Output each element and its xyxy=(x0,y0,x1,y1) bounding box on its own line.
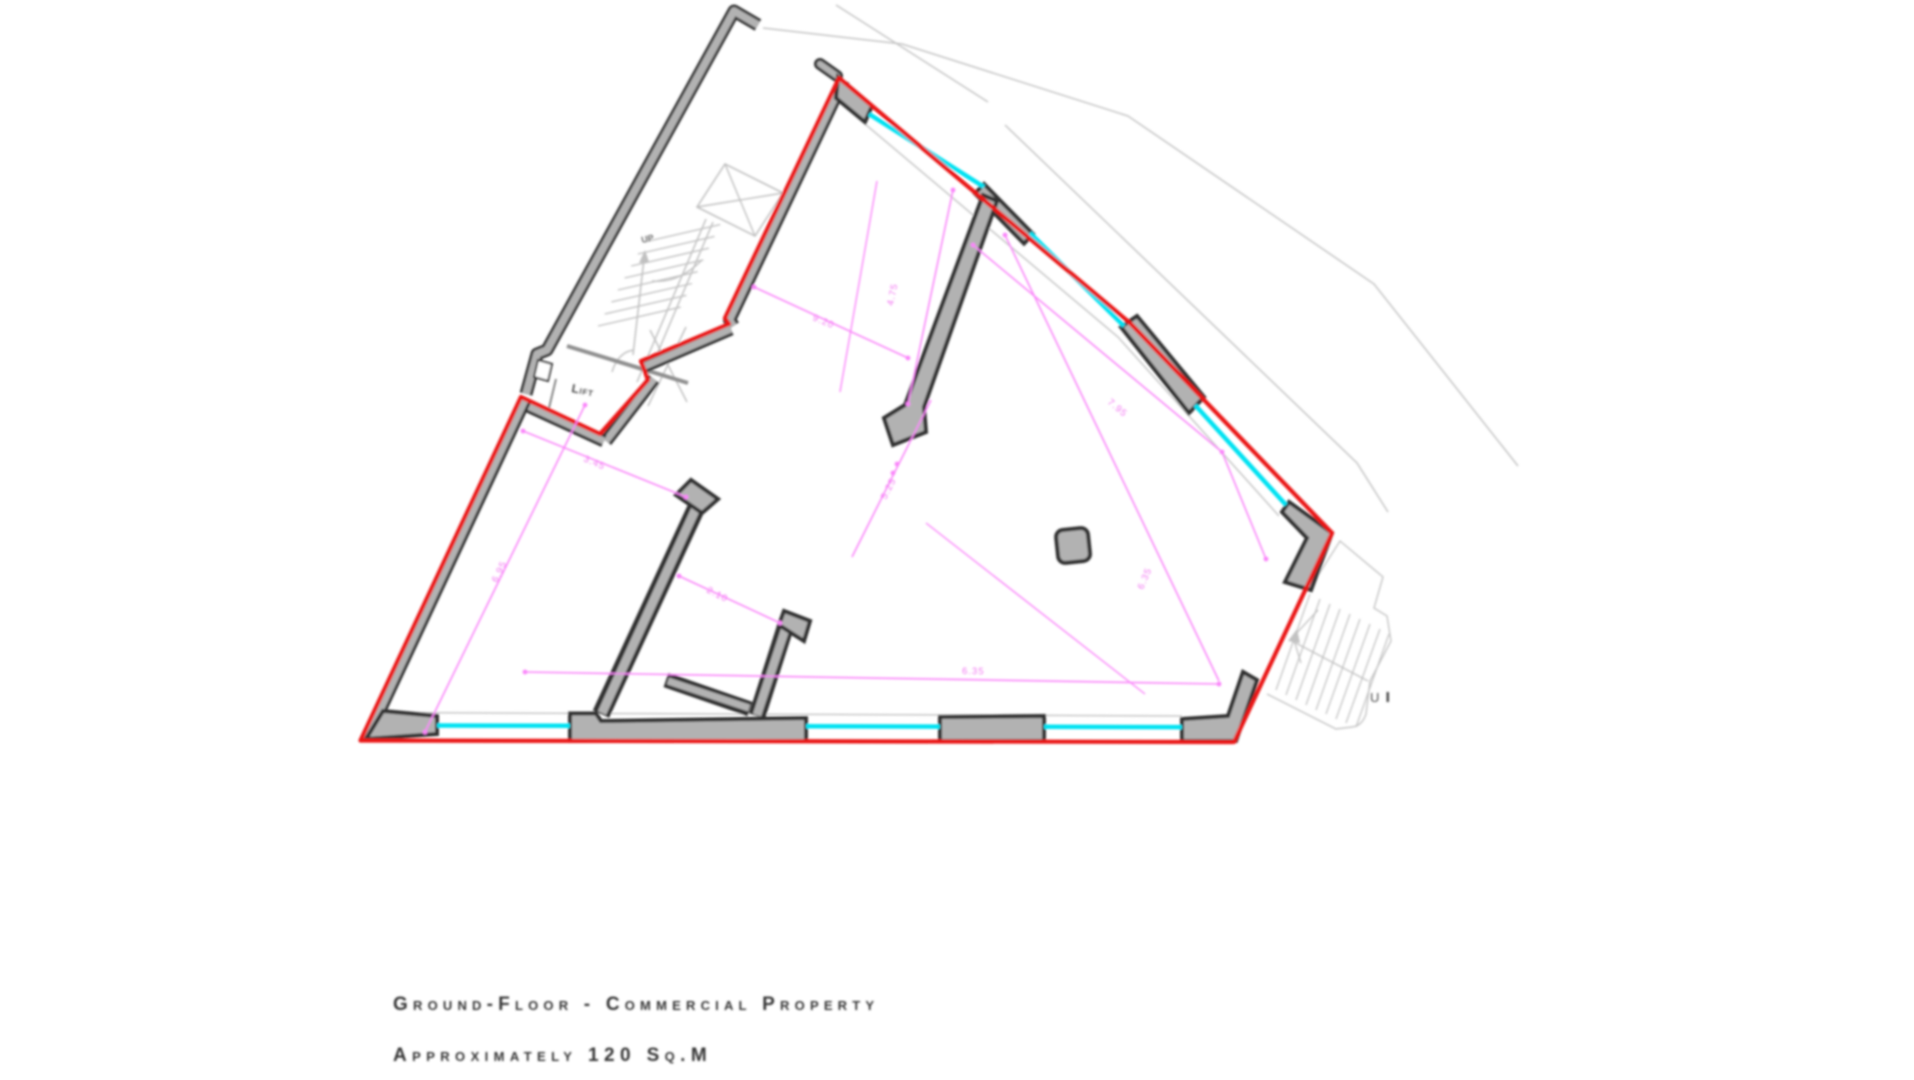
svg-text:5.25: 5.25 xyxy=(879,476,899,501)
svg-text:UP: UP xyxy=(640,233,654,245)
svg-text:9.20: 9.20 xyxy=(811,313,836,332)
svg-text:3.45: 3.45 xyxy=(582,454,607,473)
svg-text:6.35: 6.35 xyxy=(962,666,985,677)
svg-text:U: U xyxy=(1370,690,1379,705)
svg-text:Ground-Floor - Commercial Prop: Ground-Floor - Commercial Property xyxy=(393,994,879,1015)
svg-text:6.35: 6.35 xyxy=(1136,566,1155,591)
svg-text:Lift: Lift xyxy=(570,381,595,399)
svg-text:6.95: 6.95 xyxy=(490,559,510,584)
svg-text:4.75: 4.75 xyxy=(885,282,900,306)
svg-text:2.10: 2.10 xyxy=(705,585,730,605)
svg-text:Approximately 120 Sq.M: Approximately 120 Sq.M xyxy=(393,1045,712,1066)
svg-text:7.95: 7.95 xyxy=(1105,397,1129,420)
